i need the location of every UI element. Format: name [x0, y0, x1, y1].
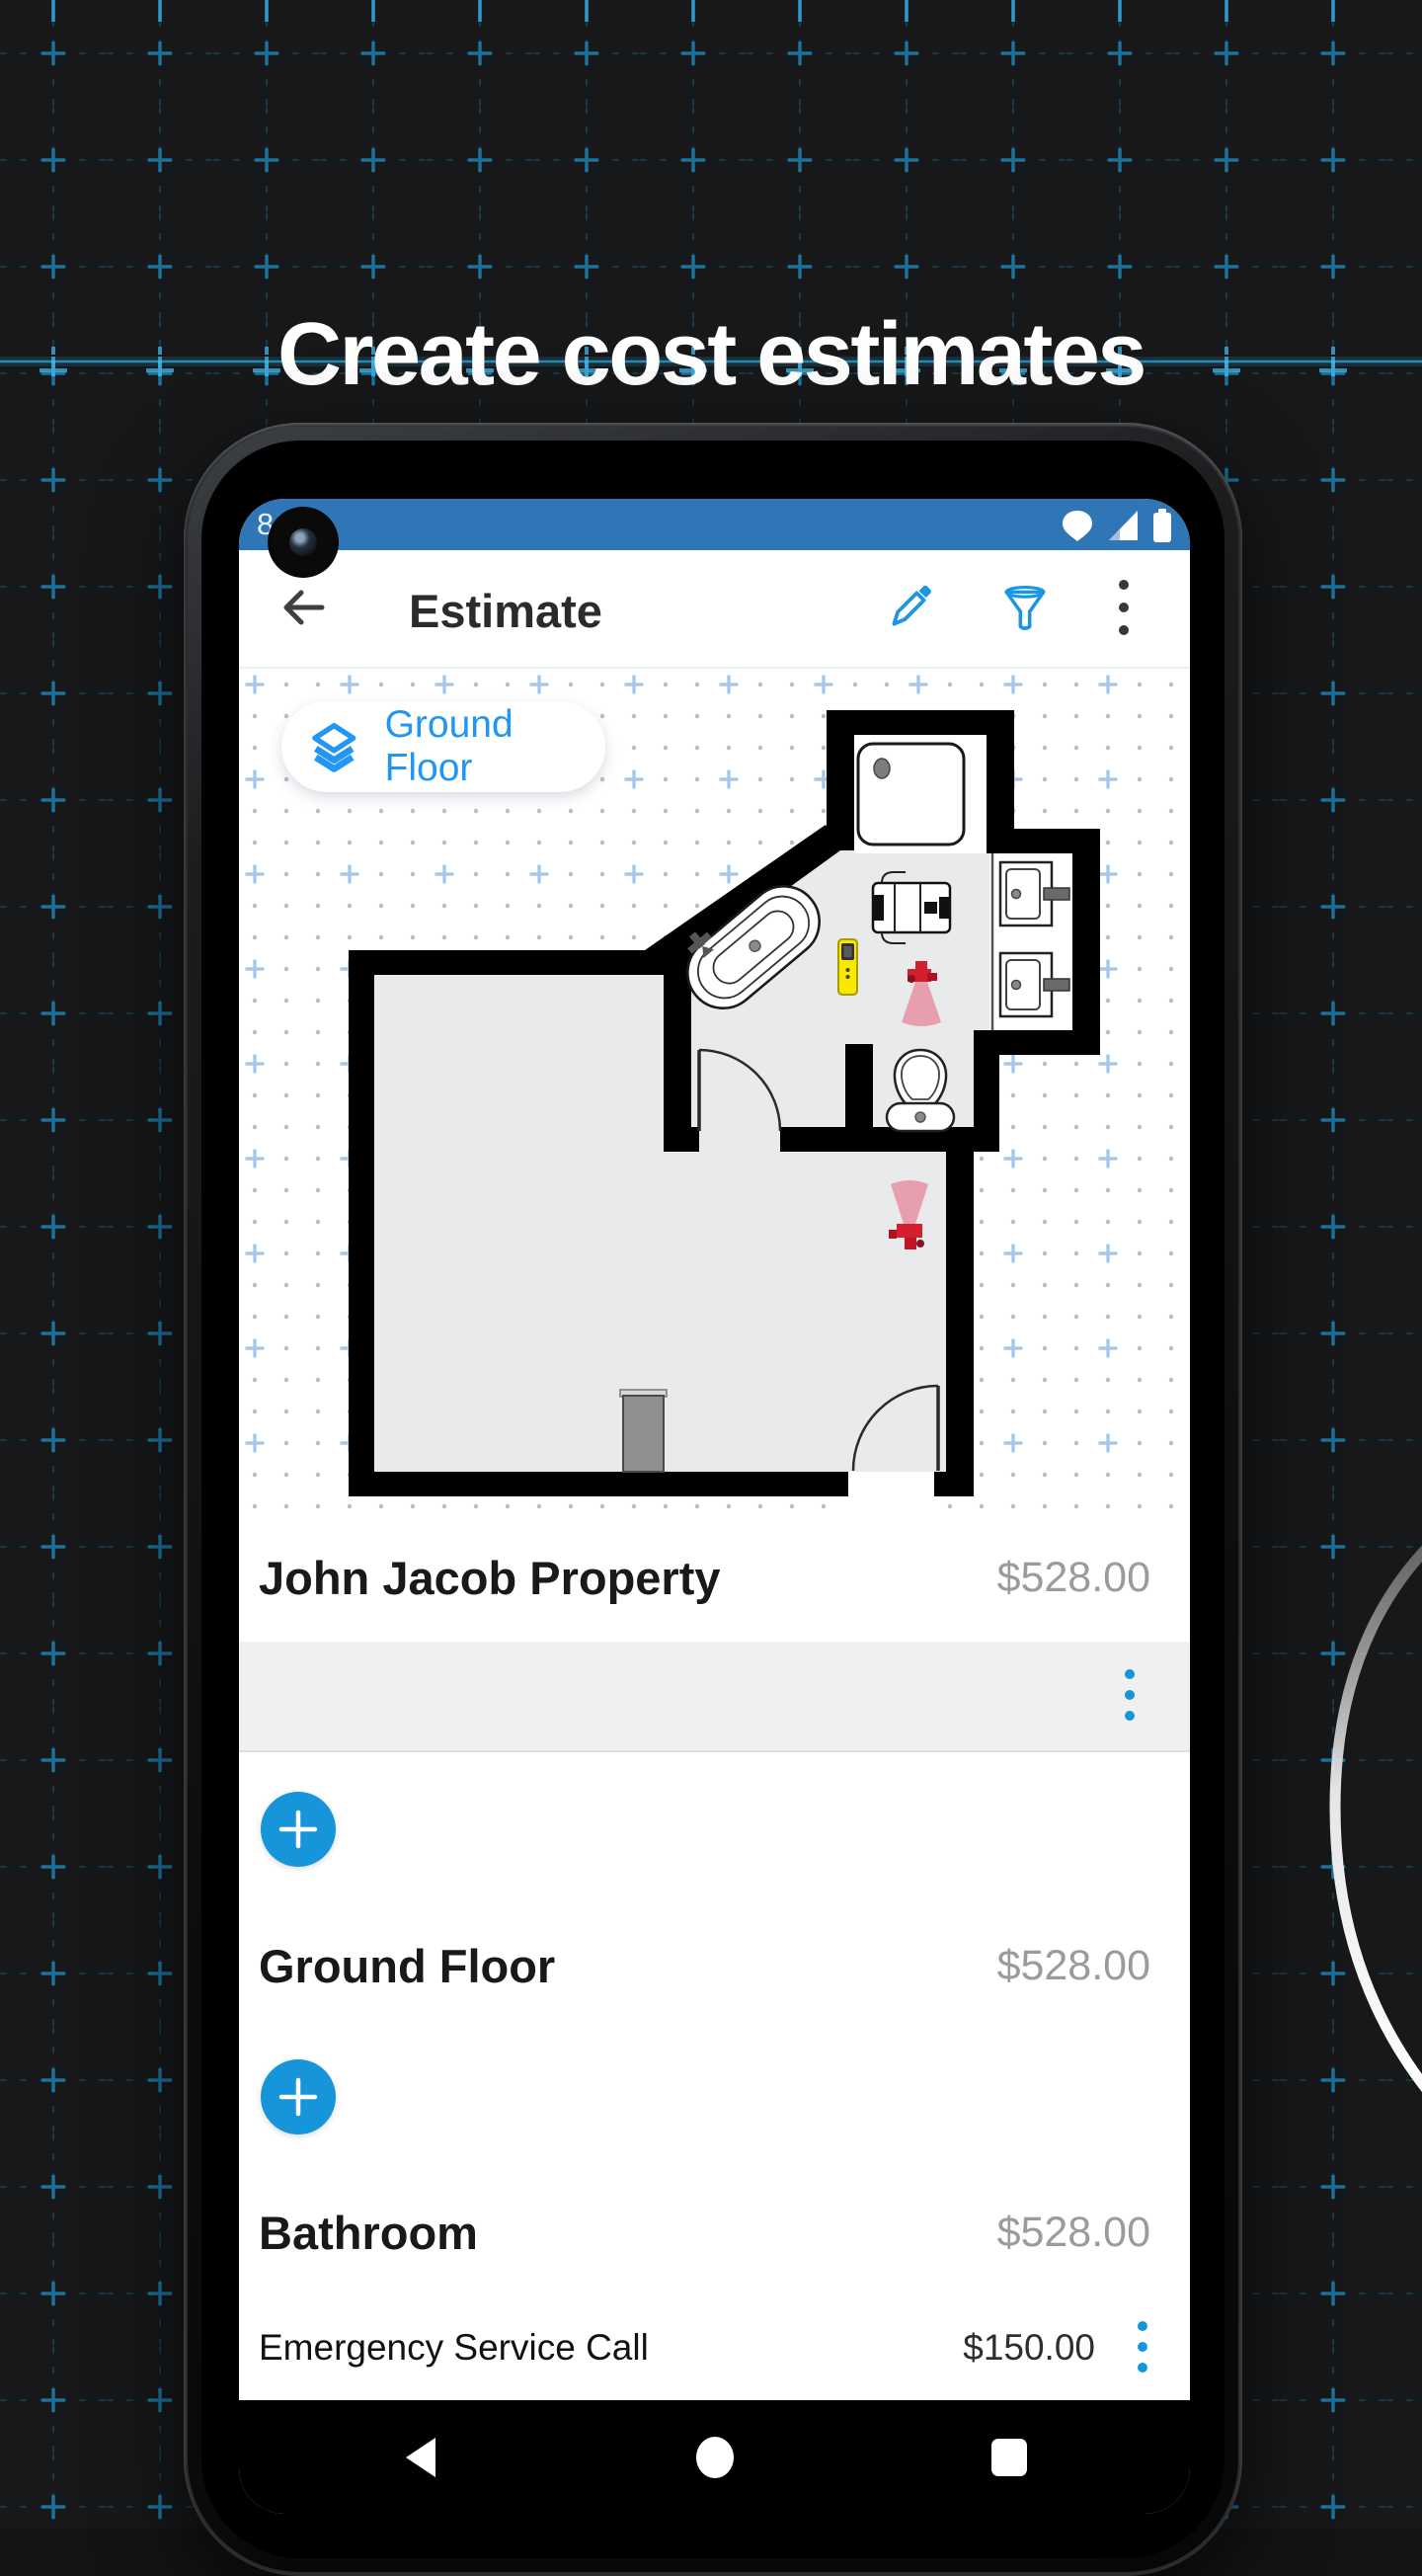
- phone-frame: 8:40 Estimat: [184, 423, 1242, 2576]
- filter-button[interactable]: [997, 580, 1053, 635]
- row-amount: $528.00: [997, 1942, 1150, 1990]
- decorative-arc: [1303, 1521, 1422, 2133]
- phone-screen: 8:40 Estimat: [239, 499, 1190, 2514]
- wifi-icon: [1060, 509, 1095, 542]
- nav-back-icon: [403, 2436, 438, 2479]
- status-icons: [1060, 508, 1172, 543]
- row-name: Bathroom: [259, 2206, 997, 2260]
- air-mover[interactable]: [873, 872, 950, 943]
- floor-mat[interactable]: [620, 1390, 667, 1472]
- row-amount: $150.00: [963, 2327, 1095, 2369]
- floor-plan[interactable]: [239, 669, 1190, 1514]
- floor-plan-area: Ground Floor: [239, 669, 1190, 1514]
- estimate-row-room[interactable]: Bathroom $528.00: [239, 2168, 1190, 2296]
- funnel-icon: [1001, 584, 1049, 631]
- camera-lens: [289, 528, 317, 556]
- battery-icon: [1152, 508, 1172, 543]
- kebab-icon: [1117, 576, 1131, 639]
- nav-home-button[interactable]: [685, 2428, 745, 2487]
- row-name: Emergency Service Call: [259, 2327, 963, 2369]
- door-threshold: [850, 1472, 932, 1514]
- signal-icon: [1107, 509, 1141, 542]
- kebab-icon: [1124, 1667, 1136, 1725]
- layers-icon: [309, 721, 359, 772]
- add-floor-button[interactable]: [261, 1792, 336, 1867]
- row-name: John Jacob Property: [259, 1551, 997, 1605]
- row-amount: $528.00: [997, 2209, 1150, 2257]
- page-title: Estimate: [409, 584, 602, 638]
- add-room-button[interactable]: [261, 2059, 336, 2134]
- pencil-icon: [885, 584, 932, 631]
- nav-recents-button[interactable]: [980, 2428, 1039, 2487]
- shower-tray[interactable]: [858, 744, 964, 845]
- android-nav-bar: [239, 2400, 1190, 2514]
- row-name: Ground Floor: [259, 1939, 997, 1993]
- estimate-row-property[interactable]: John Jacob Property $528.00: [239, 1514, 1190, 1642]
- kebab-icon: [1137, 2319, 1148, 2376]
- plus-icon: [278, 1810, 318, 1849]
- overflow-menu-button[interactable]: [1096, 580, 1151, 635]
- hero-title: Create cost estimates: [0, 304, 1422, 406]
- toilet[interactable]: [887, 1050, 954, 1131]
- plus-icon: [278, 2077, 318, 2117]
- back-button[interactable]: [275, 580, 330, 635]
- status-bar: 8:40: [239, 499, 1190, 550]
- nav-back-button[interactable]: [391, 2428, 450, 2487]
- row-amount: $528.00: [997, 1554, 1150, 1602]
- camera-cutout: [268, 507, 339, 578]
- property-menu-button[interactable]: [1095, 1656, 1164, 1735]
- estimate-row-line-item[interactable]: Emergency Service Call $150.00: [239, 2302, 1190, 2393]
- edit-button[interactable]: [881, 580, 936, 635]
- nav-recents-icon: [989, 2436, 1029, 2479]
- estimate-row-floor[interactable]: Ground Floor $528.00: [239, 1901, 1190, 2030]
- nav-home-icon: [693, 2436, 737, 2479]
- doorway-floor: [695, 1123, 784, 1155]
- moisture-meter[interactable]: [838, 939, 857, 995]
- floor-chip-label: Ground Floor: [385, 703, 605, 790]
- app-bar: Estimate: [239, 550, 1190, 669]
- line-item-menu-button[interactable]: [1115, 2308, 1170, 2387]
- floor-selector-chip[interactable]: Ground Floor: [281, 701, 605, 792]
- property-actions-band: [239, 1642, 1190, 1752]
- back-arrow-icon: [278, 586, 326, 629]
